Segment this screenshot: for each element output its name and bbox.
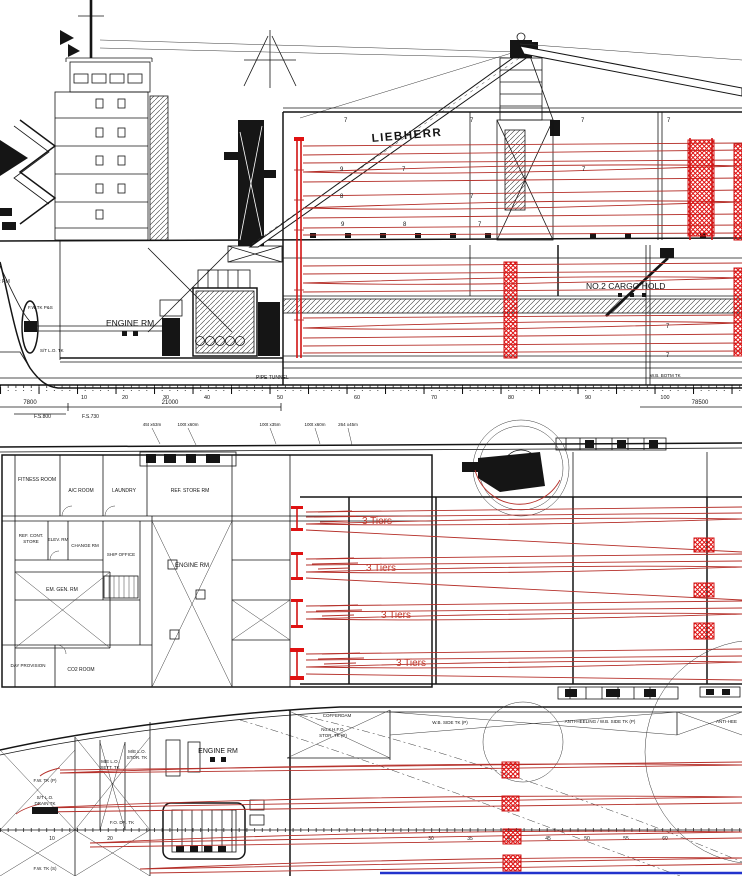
tank-boundaries [0,710,742,876]
engine-machinery [160,270,280,356]
tank-label-fw-p: F.W. TK (P) [34,778,57,783]
frame-number: 20 [107,836,113,842]
cargo-hold-label: NO.2 CARGO HOLD [586,281,665,291]
tank-label-anti-heeling: ANTI-HEELING / W.B. SIDE TK (P) [565,719,636,724]
frame-number: 90 [585,395,591,401]
pipe-tunnel-label: PIPE TUNNEL [256,375,289,381]
room-label-em-gen: EM. GEN. RM [46,587,78,593]
tank-label-hfo: No.3 H.F.O. [321,727,345,732]
red-block [502,762,519,778]
steer-room-label: STEER RM [0,279,10,285]
room-label-co2: CO2 ROOM [67,667,94,673]
log-row-3: 3 Tiers [291,599,742,628]
room-label-laundry: LAUNDRY [112,488,136,494]
red-stanchion-block [504,262,517,358]
ship-general-arrangement-drawing: ENGINE RM LIEBHERR NO.2 CARGO HOLD PIPE … [0,0,742,876]
dimension-21000: 21000 [162,400,179,406]
tier-count-label: 3 Tiers [362,516,392,527]
ga-drawing-page: ENGINE RM LIEBHERR NO.2 CARGO HOLD PIPE … [0,0,742,876]
tier-count-label: 3 Tiers [396,658,426,669]
frame-number: 50 [277,395,283,401]
red-block [694,583,714,597]
winch-spec-label: 100t x60m [177,422,198,427]
frame-number: 70 [431,395,437,401]
frame-number: 10 [81,395,87,401]
tier-number: 7 [667,118,671,124]
wb-botm-tank-label: W.B. BOTM TK [650,373,681,378]
frame-number: 55 [623,836,629,842]
aft-crane [100,40,560,262]
dimension-labels: 7800 21000 78500 F.S.800 F.S.730 [0,400,742,420]
log-row-1: 3 Tiers [291,506,742,552]
red-block [694,623,714,639]
tank-label-engine-rm: ENGINE RM [198,748,238,755]
superstructure [55,58,168,240]
room-label-office: SHIP OFFICE [107,552,135,557]
crane-working-radius [462,420,569,516]
tank-label-wb-side: W.B. SIDE TK (P) [432,720,468,725]
frame-number: 50 [584,836,590,842]
room-label-ac: A/C ROOM [68,488,93,494]
crane-body-plan [478,452,545,492]
room-label-change: CHANGE RM [71,543,99,548]
tank-plan-view: 10 20 30 35 40 45 50 55 60 ENGINE RM COF… [0,640,742,876]
red-block [503,829,521,844]
frame-spacing-800: F.S.800 [34,414,51,420]
frame-number: 35 [467,836,473,842]
crane-radius-circle [483,702,563,782]
forward-crane-boom [520,46,742,96]
room-label-ref-cont: STORE [23,539,38,544]
winch-spec-labels: 45t x63m 100t x60m 100t x35m 100t x60m 2… [143,422,358,445]
tier-number: 7 [402,167,406,173]
frame-ruler: 10 20 30 40 50 60 70 80 90 100 [0,385,742,401]
tier-number: 8 [340,194,344,200]
tank-label-st-lo: DRAIN TK [35,801,56,806]
tank-label-me-sett: M/E L.O. [101,759,119,764]
room-label-day-prov: DAY PROVISION [10,663,45,668]
room-label-engine: ENGINE RM [175,563,209,569]
frame-number: 60 [354,395,360,401]
radar-mast [244,30,296,88]
winch-spec-label: 100t x60m [304,422,325,427]
tier-number: 7 [582,167,586,173]
tank-label-st-lo: S/T L.O. [37,795,54,800]
tank-label-anti-heeling: ANTI-HEE [716,719,737,724]
mooring-winches-bottom [558,687,740,699]
room-label-ref-cont: REF. CONT. [19,533,44,538]
mooring-winches-top [140,438,666,466]
tier-number: 9 [340,167,344,173]
frame-number: 10 [49,836,55,842]
red-block [503,855,521,871]
log-row-4: 3 Tiers [290,648,742,680]
red-block [694,538,714,552]
dimension-78500: 78500 [692,400,709,406]
tier-number: 9 [341,222,345,228]
tier-count-label: 3 Tiers [366,563,396,574]
room-label-ref-store: REF. STORE RM [171,488,210,494]
tier-number: 7 [344,118,348,124]
red-stanchion-band [688,138,714,240]
frame-spacing-730: F.S.730 [82,414,99,420]
frame-number: 20 [122,395,128,401]
frame-number: 80 [508,395,514,401]
tank-label-hfo: STOR. TK (P) [319,733,347,738]
deck-edge [0,443,742,447]
winch-spec-label: 100t x35m [259,422,280,427]
tier-number: 7 [581,118,585,124]
tier-count-label: 3 Tiers [381,610,411,621]
tier-number: 7 [470,118,474,124]
fw-tank-label: F.W.TK P&S [28,305,53,310]
winch-spec-label: 264 x45m [338,422,358,427]
main-mast [60,0,104,58]
log-row-2: 3 Tiers [291,552,742,600]
red-block [502,796,519,811]
room-label-fitness: FITNESS ROOM [18,477,56,483]
red-edge-band-lower [734,268,742,356]
deck-plan-view: 45t x63m 100t x60m 100t x35m 100t x60m 2… [0,420,742,699]
side-shell-line [0,707,742,750]
st-lo-tank-label: S/T L.O. TK [40,348,64,353]
tank-label-cofferdam: COFFERDAM [323,713,352,718]
dimension-7800: 7800 [23,400,37,406]
room-label-elev: ELEV. RM [48,537,69,542]
winch-spec-label: 45t x63m [143,422,162,427]
tank-label-fo-dr: F.O. DR. TK [110,820,134,825]
frame-number: 40 [204,395,210,401]
engine-room-label: ENGINE RM [106,318,154,328]
tank-label-me-sett: SETT. TK [100,765,119,770]
tank-label-fw-s: F.W. TK (S) [34,866,57,871]
red-edge-band-upper [734,144,742,240]
tier-number: 7 [470,194,474,200]
tank-label-me-stor: STOR. TK [127,755,148,760]
frame-number: 100 [660,395,669,401]
profile-view: ENGINE RM LIEBHERR NO.2 CARGO HOLD PIPE … [0,0,742,420]
tank-label-me-stor: M/E L.O. [128,749,146,754]
